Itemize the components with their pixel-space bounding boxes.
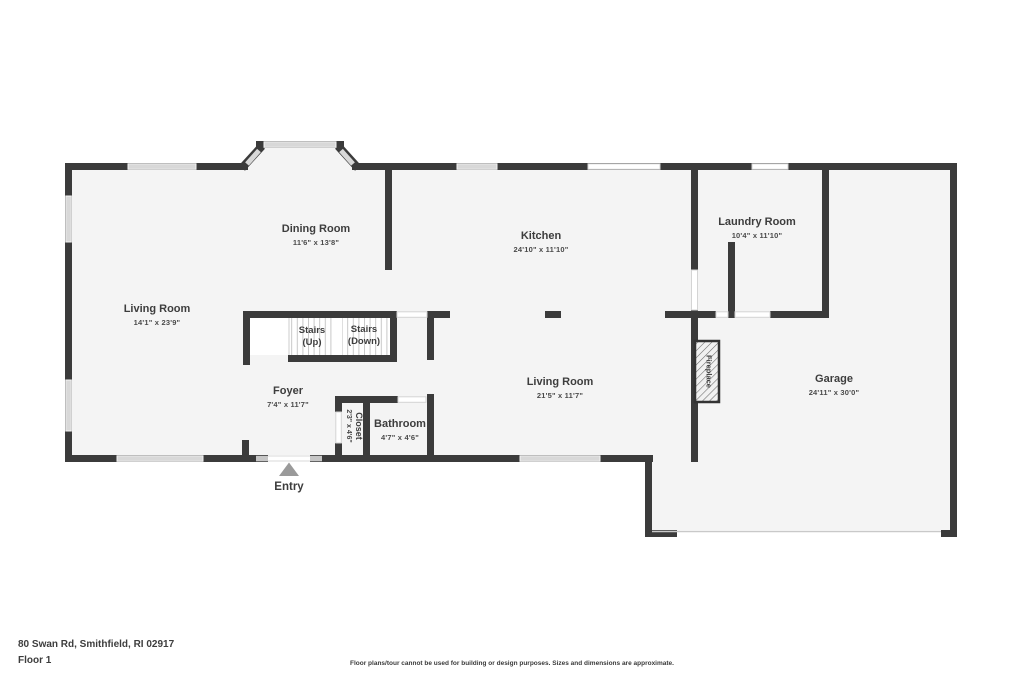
entry-label: Entry <box>274 481 304 493</box>
room-dims-dining-room: 11'6" x 13'8" <box>293 238 339 247</box>
garage-door-opening <box>652 530 941 537</box>
room-label-living-room-left: Living Room <box>124 303 191 315</box>
room-label-closet: Closet <box>354 412 364 440</box>
door-opening <box>692 270 698 310</box>
room-label-bathroom: Bathroom <box>374 418 426 430</box>
window <box>752 164 788 170</box>
stairs-down-label-line2: (Down) <box>348 336 380 347</box>
room-dims-laundry-room: 10'4" x 11'10" <box>732 231 783 240</box>
door-opening <box>716 312 728 318</box>
window <box>520 456 600 462</box>
door-opening <box>735 312 770 318</box>
stairs-down-label-line1: Stairs <box>351 324 377 335</box>
stairs-up-label-line1: Stairs <box>299 325 325 336</box>
window <box>66 380 72 431</box>
window <box>66 196 72 242</box>
room-label-foyer: Foyer <box>273 385 304 397</box>
fireplace: Fireplace <box>695 341 719 402</box>
room-label-kitchen: Kitchen <box>521 230 562 242</box>
room-dims-foyer: 7'4" x 11'7" <box>267 400 309 409</box>
disclaimer-text: Floor plans/tour cannot be used for buil… <box>350 660 674 667</box>
floorplan-page: Fireplace Living Room 14'1" x 23'9" Dini… <box>0 0 1024 680</box>
room-label-dining-room: Dining Room <box>282 223 351 235</box>
room-dims-living-room-left: 14'1" x 23'9" <box>134 318 181 327</box>
closet-door <box>336 412 342 443</box>
address-text: 80 Swan Rd, Smithfield, RI 02917 <box>18 639 174 650</box>
room-dims-living-room-center: 21'5" x 11'7" <box>537 391 583 400</box>
window <box>588 164 660 170</box>
entry-doorway <box>256 455 322 462</box>
window <box>457 164 497 170</box>
room-label-garage: Garage <box>815 373 853 385</box>
floor-label: Floor 1 <box>18 655 51 666</box>
window <box>117 456 203 462</box>
stairs-up-label-line2: (Up) <box>303 337 322 348</box>
floorplan-drawing: Fireplace Living Room 14'1" x 23'9" Dini… <box>0 0 1024 680</box>
opening <box>397 312 427 318</box>
window <box>398 397 426 403</box>
room-dims-closet: 2'3" x 4'6" <box>345 409 352 442</box>
fireplace-label: Fireplace <box>705 355 714 388</box>
room-dims-kitchen: 24'10" x 11'10" <box>514 245 569 254</box>
room-label-living-room-center: Living Room <box>527 376 594 388</box>
room-dims-garage: 24'11" x 30'0" <box>809 388 860 397</box>
bay-window <box>264 142 336 148</box>
room-dims-bathroom: 4'7" x 4'6" <box>381 433 419 442</box>
window <box>128 164 196 170</box>
entry-arrow-icon <box>279 463 299 477</box>
room-label-laundry-room: Laundry Room <box>718 216 796 228</box>
